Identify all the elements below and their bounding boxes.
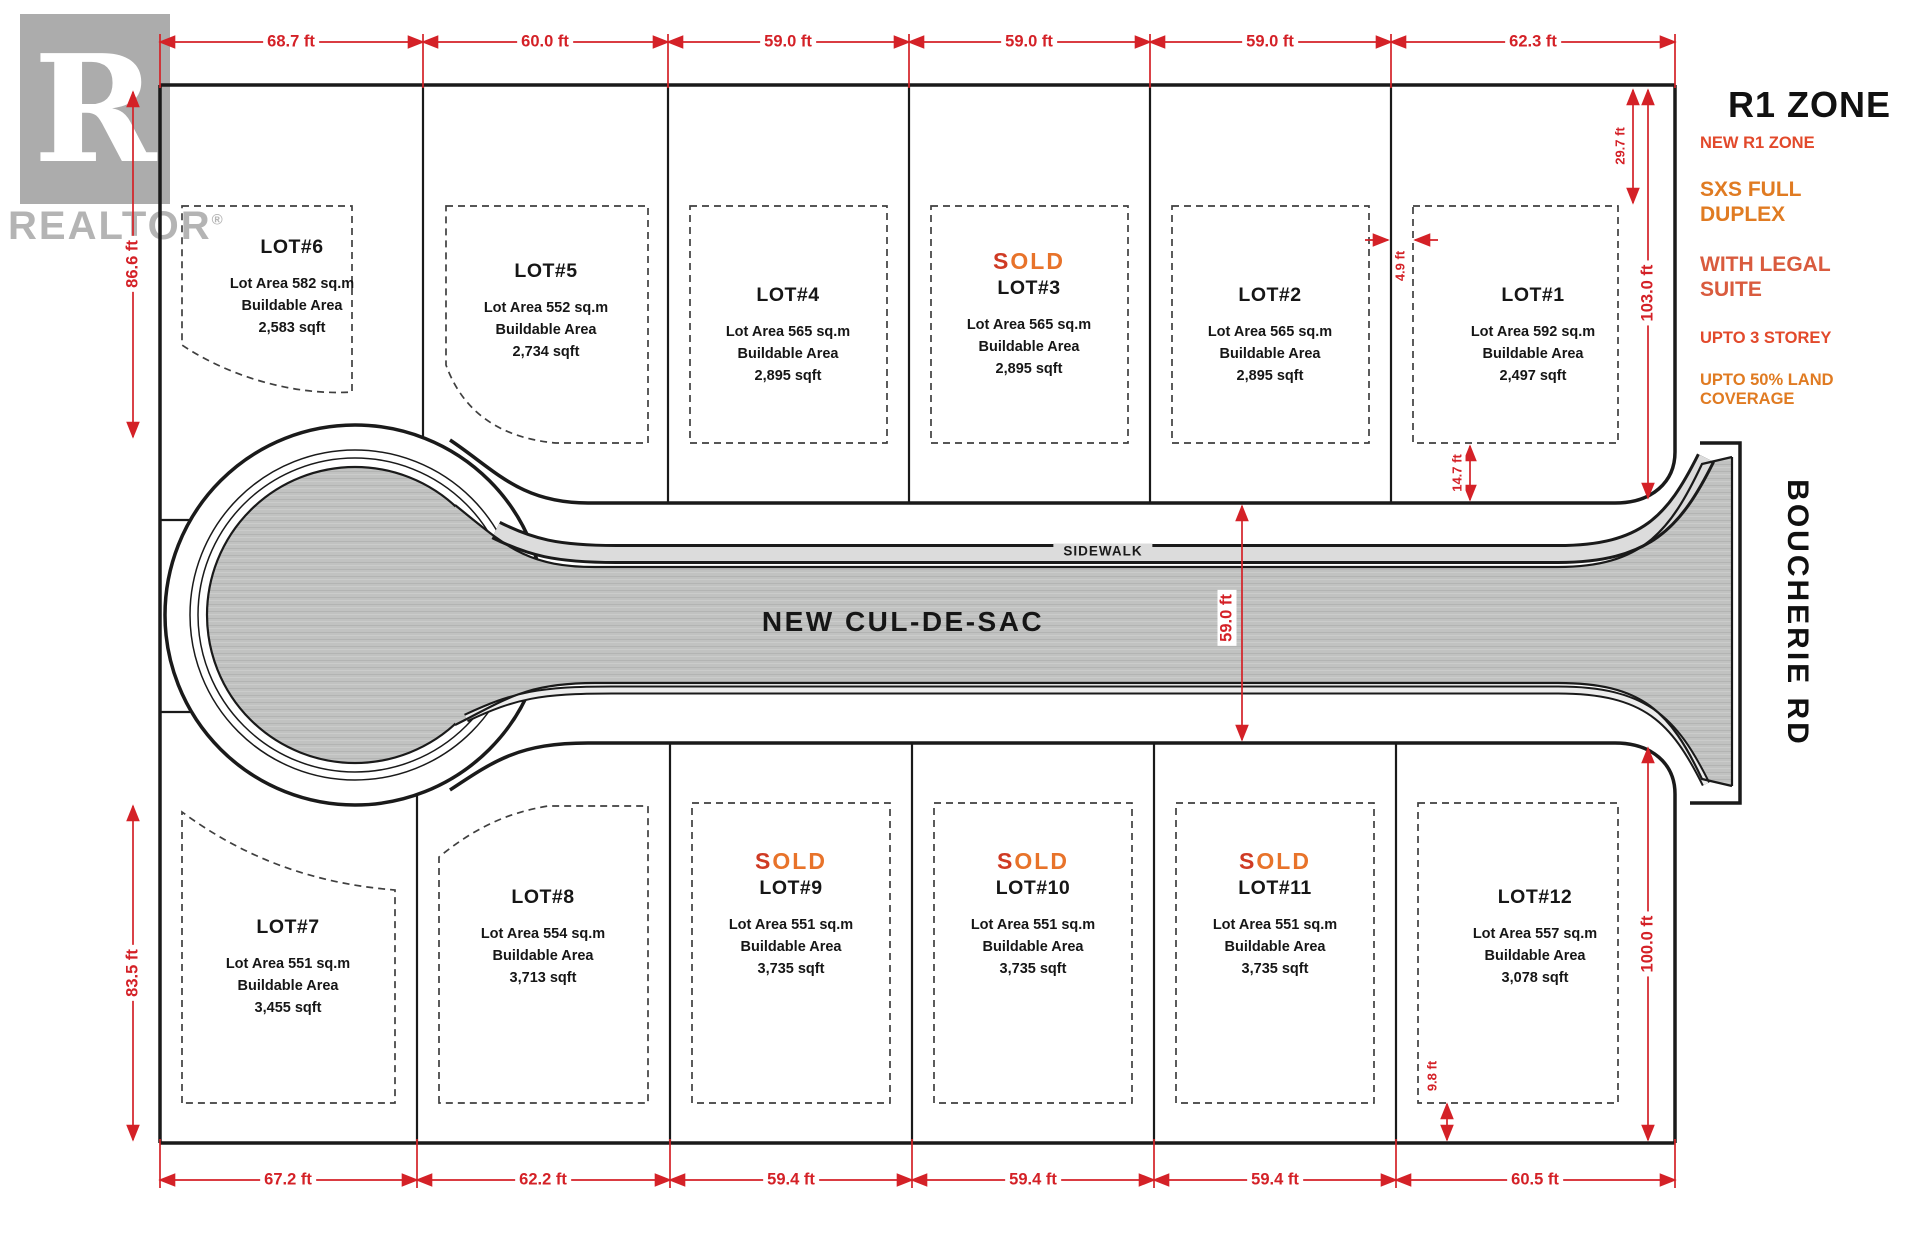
lot-area: Lot Area 565 sq.m <box>676 322 900 344</box>
lot-4-label: LOT#4 Lot Area 565 sq.m Buildable Area 2… <box>676 284 900 387</box>
lot-buildable: Buildable Area <box>1421 344 1645 366</box>
lot-buildable: Buildable Area <box>1158 344 1382 366</box>
lot-name: LOT#12 <box>1423 886 1647 909</box>
dim-top-2: 60.0 ft <box>517 33 573 52</box>
lot-name: LOT#2 <box>1158 284 1382 307</box>
sold-badge: SOLD <box>917 248 1141 275</box>
sidewalk-band-outline <box>496 458 1706 554</box>
lot-12-label: LOT#12 Lot Area 557 sq.m Buildable Area … <box>1423 886 1647 989</box>
lot-area: Lot Area 551 sq.m <box>679 915 903 937</box>
lot-buildable-sqft: 2,895 sqft <box>917 359 1141 381</box>
lot-buildable-sqft: 2,895 sqft <box>676 366 900 388</box>
lot-area: Lot Area 565 sq.m <box>1158 322 1382 344</box>
dim-top-4: 59.0 ft <box>1001 33 1057 52</box>
lot-name: LOT#6 <box>180 236 404 259</box>
zone-item-upto-50-land-coverage: UPTO 50% LAND COVERAGE <box>1700 371 1862 410</box>
dim-bottom-2: 62.2 ft <box>515 1171 571 1190</box>
lot-buildable: Buildable Area <box>679 937 903 959</box>
zone-item-new-r1-zone: NEW R1 ZONE <box>1700 134 1815 153</box>
lot-name: LOT#5 <box>434 260 658 283</box>
dim-lot12-rear-setback: 9.8 ft <box>1426 1059 1441 1093</box>
dim-top-3: 59.0 ft <box>760 33 816 52</box>
site-plan-page: R REALTOR® <box>0 0 1920 1243</box>
sold-badge: SOLD <box>1163 848 1387 875</box>
dim-lot1-side-gap: 4.9 ft <box>1394 249 1409 283</box>
sold-badge: SOLD <box>921 848 1145 875</box>
dim-lot1-rear-setback: 14.7 ft <box>1451 452 1466 494</box>
dim-bottom-1: 67.2 ft <box>260 1171 316 1190</box>
lot-10-label: SOLD LOT#10 Lot Area 551 sq.m Buildable … <box>921 848 1145 980</box>
dim-lot1-front-setback: 29.7 ft <box>1614 125 1629 167</box>
south-curb-band-outline <box>466 690 1706 784</box>
lot-area: Lot Area 565 sq.m <box>917 315 1141 337</box>
dim-bottom-4: 59.4 ft <box>1005 1171 1061 1190</box>
lot-buildable: Buildable Area <box>1163 937 1387 959</box>
lot-buildable: Buildable Area <box>1423 946 1647 968</box>
lot-buildable: Buildable Area <box>180 296 404 318</box>
dim-top-5: 59.0 ft <box>1242 33 1298 52</box>
lot-area: Lot Area 551 sq.m <box>921 915 1145 937</box>
dim-left-upper: 86.6 ft <box>124 236 143 292</box>
lot-buildable-sqft: 2,583 sqft <box>180 318 404 340</box>
lot-area: Lot Area 552 sq.m <box>434 298 658 320</box>
zone-item-with-legal-suite: WITH LEGAL SUITE <box>1700 253 1838 303</box>
dim-bottom-5: 59.4 ft <box>1247 1171 1303 1190</box>
lot-name: LOT#9 <box>679 877 903 900</box>
cross-street-label: BOUCHERIE RD <box>1780 479 1814 747</box>
lot-buildable-sqft: 2,734 sqft <box>434 342 658 364</box>
south-curb-band <box>466 690 1706 784</box>
lot-buildable: Buildable Area <box>434 320 658 342</box>
lot-name: LOT#8 <box>431 886 655 909</box>
lot-buildable-sqft: 3,713 sqft <box>431 968 655 990</box>
lot-buildable: Buildable Area <box>431 946 655 968</box>
sidewalk-label: SIDEWALK <box>1053 544 1152 559</box>
lot-buildable-sqft: 3,735 sqft <box>1163 959 1387 981</box>
lot-name: LOT#4 <box>676 284 900 307</box>
lot-area: Lot Area 582 sq.m <box>180 274 404 296</box>
dim-left-lower: 83.5 ft <box>124 945 143 1001</box>
lot-area: Lot Area 551 sq.m <box>176 954 400 976</box>
dim-road-width: 59.0 ft <box>1218 590 1237 646</box>
lot-6-label: LOT#6 Lot Area 582 sq.m Buildable Area 2… <box>180 236 404 339</box>
lot-area: Lot Area 554 sq.m <box>431 924 655 946</box>
zone-panel-title: R1 ZONE <box>1728 84 1891 126</box>
sidewalk-band <box>496 458 1706 554</box>
lot-name: LOT#10 <box>921 877 1145 900</box>
dim-bottom-3: 59.4 ft <box>763 1171 819 1190</box>
lot-buildable: Buildable Area <box>917 337 1141 359</box>
lot-area: Lot Area 592 sq.m <box>1421 322 1645 344</box>
lot-name: LOT#3 <box>917 277 1141 300</box>
lot-buildable: Buildable Area <box>176 976 400 998</box>
lot-buildable-sqft: 2,497 sqft <box>1421 366 1645 388</box>
lot-area: Lot Area 557 sq.m <box>1423 924 1647 946</box>
lot-11-label: SOLD LOT#11 Lot Area 551 sq.m Buildable … <box>1163 848 1387 980</box>
dim-bottom-6: 60.5 ft <box>1507 1171 1563 1190</box>
dim-top-1: 68.7 ft <box>263 33 319 52</box>
lot-name: LOT#11 <box>1163 877 1387 900</box>
lot-buildable: Buildable Area <box>676 344 900 366</box>
lot-8-label: LOT#8 Lot Area 554 sq.m Buildable Area 3… <box>431 886 655 989</box>
lot-9-label: SOLD LOT#9 Lot Area 551 sq.m Buildable A… <box>679 848 903 980</box>
sold-badge: SOLD <box>679 848 903 875</box>
lot-name: LOT#1 <box>1421 284 1645 307</box>
lot-2-label: LOT#2 Lot Area 565 sq.m Buildable Area 2… <box>1158 284 1382 387</box>
lot-1-label: LOT#1 Lot Area 592 sq.m Buildable Area 2… <box>1421 284 1645 387</box>
lot-name: LOT#7 <box>176 916 400 939</box>
zone-item-sxs-full-duplex: SXS FULL DUPLEX <box>1700 178 1822 228</box>
lot-buildable: Buildable Area <box>921 937 1145 959</box>
lot-buildable-sqft: 3,735 sqft <box>679 959 903 981</box>
road-name: NEW CUL-DE-SAC <box>762 606 1044 638</box>
lot-buildable-sqft: 3,735 sqft <box>921 959 1145 981</box>
lot-buildable-sqft: 3,455 sqft <box>176 998 400 1020</box>
lot-buildable-sqft: 3,078 sqft <box>1423 968 1647 990</box>
road-south-edge <box>455 683 1732 786</box>
lot-5-label: LOT#5 Lot Area 552 sq.m Buildable Area 2… <box>434 260 658 363</box>
lot-buildable-sqft: 2,895 sqft <box>1158 366 1382 388</box>
lot-area: Lot Area 551 sq.m <box>1163 915 1387 937</box>
lot-3-label: SOLD LOT#3 Lot Area 565 sq.m Buildable A… <box>917 248 1141 380</box>
zone-item-upto-3-storey: UPTO 3 STOREY <box>1700 329 1831 348</box>
road-corridor <box>455 457 1732 786</box>
dim-top-6: 62.3 ft <box>1505 33 1561 52</box>
lot-7-label: LOT#7 Lot Area 551 sq.m Buildable Area 3… <box>176 916 400 1019</box>
